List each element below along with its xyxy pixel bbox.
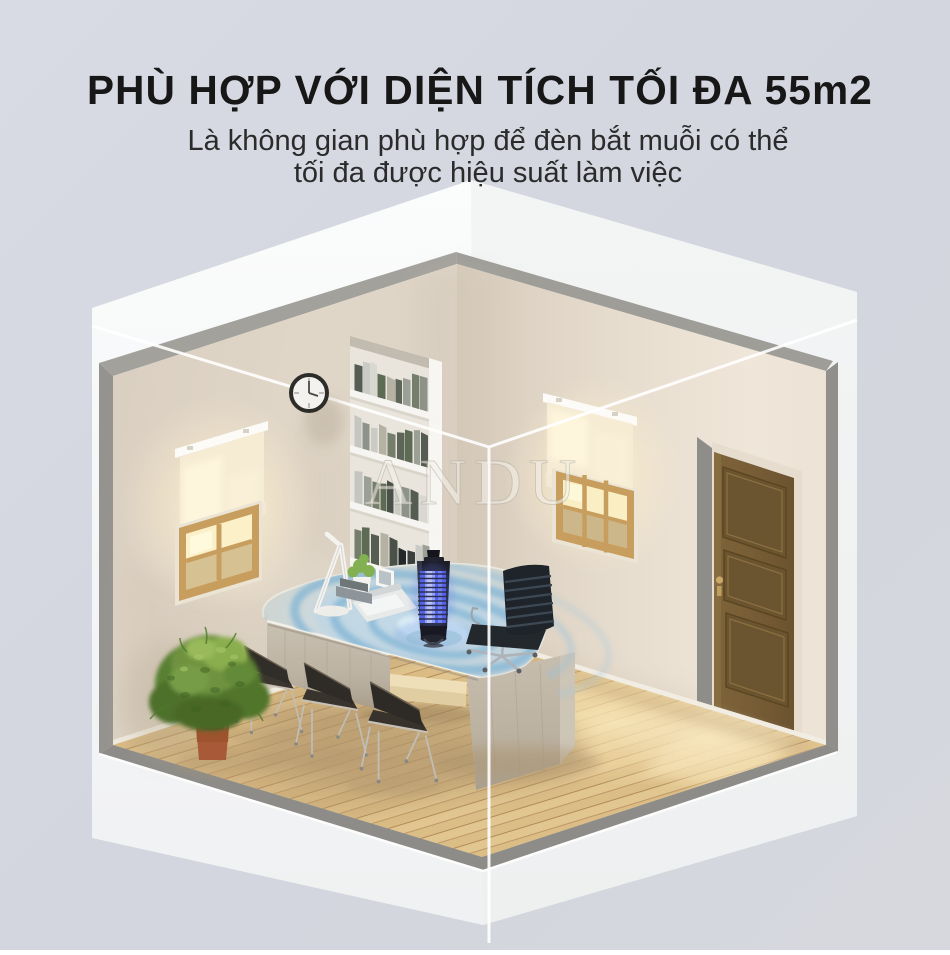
svg-text:PHÙ HỢP VỚI DIỆN TÍCH TỐI ĐA 5: PHÙ HỢP VỚI DIỆN TÍCH TỐI ĐA 55m2 xyxy=(87,67,873,113)
svg-text:Là không gian phù hợp để đèn b: Là không gian phù hợp để đèn bắt muỗi có… xyxy=(187,124,788,157)
svg-text:ANDU: ANDU xyxy=(365,446,584,519)
svg-text:tối đa được hiệu suất làm việc: tối đa được hiệu suất làm việc xyxy=(294,157,682,189)
